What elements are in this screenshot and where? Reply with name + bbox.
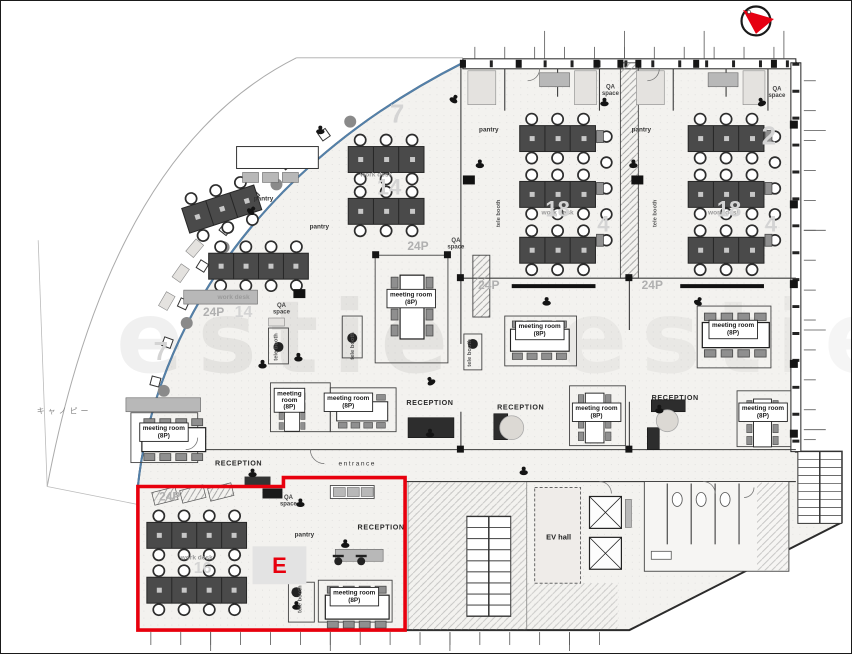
room-label: 18 [717, 196, 741, 221]
room-label: pantry [479, 127, 499, 134]
room-label: tele booth [496, 199, 502, 227]
room-label: RECEPTION [406, 399, 453, 407]
room-label: 4 [765, 211, 778, 236]
room-label: tele booth [297, 585, 303, 613]
room-label: 24P [203, 305, 224, 319]
room-label: tele booth [652, 199, 658, 227]
room-label: 2 [762, 123, 776, 151]
room-label: work desk [217, 294, 250, 301]
room-label: pantry [632, 127, 652, 134]
room-label: RECEPTION [358, 523, 405, 531]
room-label: pantry [295, 531, 315, 538]
room-label: 24P [478, 278, 499, 292]
room-label: キャノピー [37, 407, 92, 416]
room-label: 18 [545, 196, 569, 221]
room-label: tele booth [350, 332, 356, 360]
room-label: RECEPTION [652, 394, 699, 402]
floor-plan-page: estie estie [0, 0, 852, 654]
north-compass-icon [742, 6, 774, 35]
room-label: 24P [642, 278, 663, 292]
room-label: EV hall [546, 532, 571, 541]
room-label: entrance [338, 461, 376, 468]
room-label: 16 [194, 560, 212, 577]
room-label: RECEPTION [215, 460, 262, 468]
zone-e-label: E [272, 553, 287, 578]
room-label: 14 [377, 174, 402, 199]
room-label: 7 [390, 101, 404, 129]
floor-plan-drawing: estie estie [1, 1, 851, 653]
room-label: 24P [159, 489, 180, 503]
room-label: tele booth [273, 333, 279, 361]
room-label: 14 [235, 304, 253, 321]
room-label: 24P [407, 239, 428, 253]
room-label: 7 [154, 338, 168, 366]
room-label: 4 [597, 211, 610, 236]
room-label: tele booth [467, 339, 473, 367]
room-label: pantry [254, 195, 274, 202]
room-label: pantry [310, 223, 330, 230]
room-label: RECEPTION [497, 404, 544, 412]
